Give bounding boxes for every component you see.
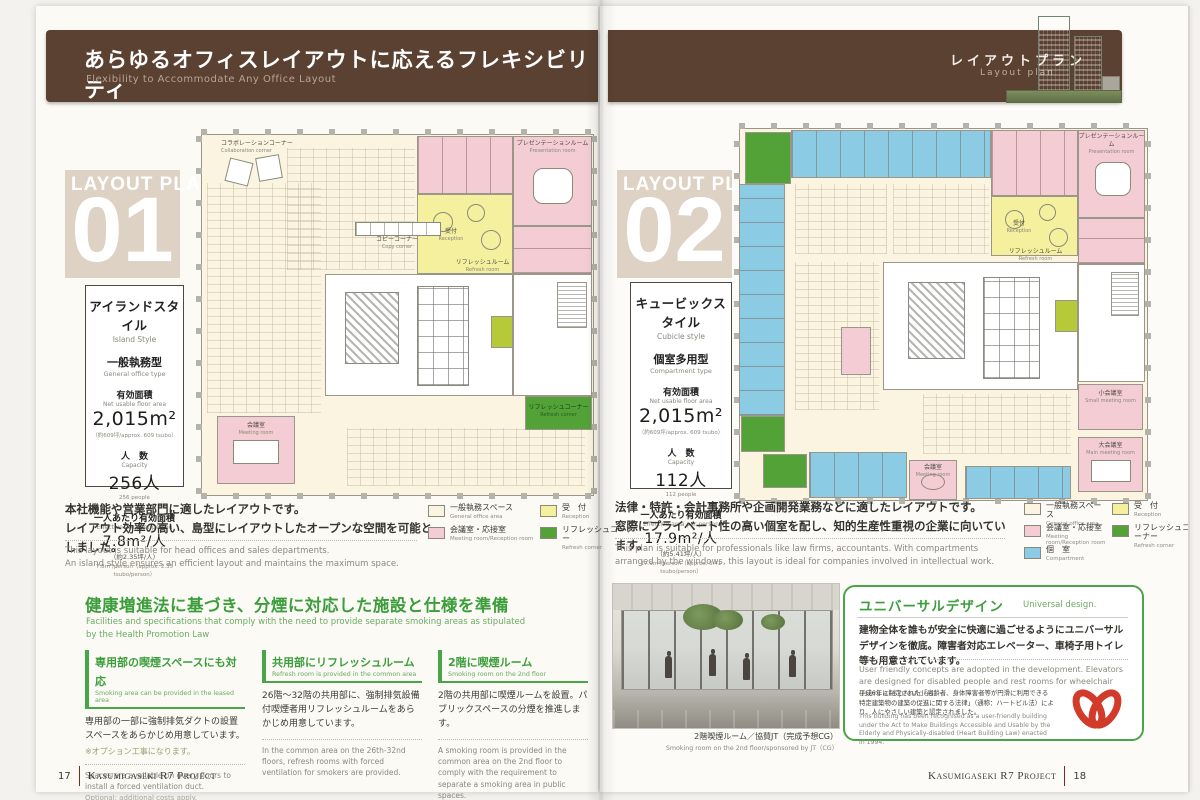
- legend-item-reception: 受 付Reception: [1112, 502, 1196, 524]
- plan1-type-en: General office type: [86, 370, 183, 378]
- header-band-right: レイアウトプラン Layout plan: [608, 30, 1122, 102]
- legend-item-compartment: 個 室Compartment: [1024, 546, 1108, 568]
- plan2-reception-rooms-zone: [991, 130, 1078, 196]
- legend-swatch: [1024, 547, 1041, 559]
- plan2-reception-label: 受付: [1013, 220, 1025, 227]
- plan2-capacity-value: 112人: [631, 466, 731, 491]
- smoking-col1-title-en: Smoking area can be provided in the leas…: [95, 690, 245, 704]
- plan2-presentation-label: プレゼンテーションルーム: [1079, 133, 1145, 148]
- plan1-area-label: 有効面積: [86, 388, 183, 401]
- project-name-right: Kasumigaseki R7 Project: [928, 770, 1056, 782]
- plan2-area-value: 2,015m²: [631, 405, 731, 427]
- smoking-room-photo: [612, 583, 840, 729]
- legend-swatch: [1112, 525, 1129, 537]
- smoking-col1-title: 専用部の喫煙スペースにも対応: [95, 656, 237, 688]
- footer-left: 17 Kasumigaseki R7 Project: [58, 766, 216, 786]
- plan2-main-meeting-label-en: Main meeting room: [1078, 450, 1143, 457]
- plan2-refresh-corner-bl2: [763, 454, 807, 488]
- legend-swatch: [540, 527, 557, 539]
- plan1-refresh-room-zone: [491, 316, 513, 348]
- plan1-info-box: アイランドスタイル Island Style 一般執務型 General off…: [85, 285, 184, 487]
- plan1-collaboration-label: コラボレーションコーナー: [221, 140, 293, 147]
- photo-caption-jp: 2階喫煙ルーム／協賛JT（完成予想CG）: [612, 731, 838, 742]
- layout-plan-02-number: 02: [617, 184, 732, 276]
- plan1-style-jp: アイランドスタイル: [86, 296, 183, 334]
- layout-plan-01-block: LAYOUT PLAN 01: [65, 170, 180, 278]
- smoking-heading-en: Facilities and specifications that compl…: [86, 616, 526, 642]
- plan2-area-label: 有効面積: [631, 385, 731, 398]
- plan2-compartment-bottom: [809, 452, 907, 498]
- footer-right: Kasumigaseki R7 Project 18: [928, 766, 1086, 786]
- brochure-spread: あらゆるオフィスレイアウトに応えるフレキシビリティ Flexibility to…: [0, 0, 1200, 800]
- plan2-desc-jp1: 法律・特許・会計事務所や企画開発業務などに適したレイアウトです。: [615, 498, 1015, 517]
- project-name-left: Kasumigaseki R7 Project: [88, 770, 216, 782]
- plan1-capacity-label-en: Capacity: [86, 462, 183, 469]
- heart-building-mark: [1066, 683, 1128, 735]
- page-number-left: 17: [58, 771, 71, 782]
- legend-item-meeting: 会議室・応接室Meeting room/Reception room: [1024, 524, 1108, 546]
- plan1-legend: 一般執務スペースGeneral office area 受 付Reception…: [428, 504, 636, 548]
- plan2-reception-label-en: Reception: [999, 228, 1039, 235]
- plan1-capacity-label: 人 数: [86, 449, 183, 462]
- photo-caption-en: Smoking room on the 2nd floor/sponsored …: [612, 743, 838, 752]
- plan2-small-meeting-label-en: Small meeting room: [1078, 398, 1143, 405]
- page-subtitle: Flexibility to Accommodate Any Office La…: [86, 74, 336, 85]
- plan1-copy-label: コピーコーナー: [376, 236, 418, 243]
- universal-title-jp: ユニバーサルデザイン: [859, 595, 1004, 615]
- layout-plan-02-block: LAYOUT PLAN 02: [617, 170, 732, 278]
- photo-caption: 2階喫煙ルーム／協賛JT（完成予想CG） Smoking room on the…: [612, 731, 838, 752]
- smoking-col3-title: 2階に喫煙ルーム: [448, 656, 532, 669]
- plan1-type-jp: 一般執務型: [86, 354, 183, 370]
- plan2-type-en: Compartment type: [631, 367, 731, 375]
- smoking-col2-title: 共用部にリフレッシュルーム: [272, 656, 415, 669]
- plan2-refresh-room-zone: [1055, 300, 1078, 332]
- plan1-reception-label: 受付: [445, 228, 457, 235]
- smoking-col3-body: 2階の共用部に喫煙ルームを設置。パブリックスペースの分煙を推進します。: [438, 690, 588, 732]
- plan2-small-meeting-label: 小会議室: [1098, 390, 1122, 397]
- floor-plan-02: プレゼンテーションルームPresentation room 受付Receptio…: [733, 122, 1152, 505]
- floor-plan-01: プレゼンテーションルームPresentation room 受付Receptio…: [195, 128, 598, 500]
- plan1-desc-en1: This layout is suitable for head offices…: [65, 545, 425, 558]
- plan2-info-box: キュービックスタイル Cubicle style 個室多用型 Compartme…: [630, 282, 732, 489]
- smoking-col1-note: ※オプション工事になります。: [85, 746, 245, 757]
- plan1-capacity-value: 256人: [86, 469, 183, 494]
- plan2-compartment-left: [739, 184, 785, 416]
- plan1-refresh-room-label: リフレッシュルーム: [456, 259, 510, 266]
- legend-swatch: [428, 505, 445, 517]
- plan2-refresh-room-label: リフレッシュルーム: [1009, 248, 1063, 255]
- plan2-refresh-corner-bl: [741, 416, 785, 452]
- smoking-col-2: 共用部にリフレッシュルームRefresh room is provided in…: [262, 650, 422, 779]
- header-band-left: あらゆるオフィスレイアウトに応えるフレキシビリティ Flexibility to…: [46, 30, 598, 102]
- plan2-meeting-label: 会議室: [924, 464, 942, 471]
- plan1-desc-en: This layout is suitable for head offices…: [65, 545, 425, 571]
- smoking-col2-title-en: Refresh room is provided in the common a…: [272, 671, 422, 678]
- plan1-meeting-label: 会議室: [247, 422, 265, 429]
- plan1-desc-jp1: 本社機能や営業部門に適したレイアウトです。: [65, 500, 435, 519]
- smoking-col3-title-en: Smoking room on the 2nd floor: [448, 671, 588, 678]
- legend-item-refresh: リフレッシュコーナーRefresh corner: [1112, 524, 1196, 546]
- plan1-copy-label-en: Copy corner: [355, 244, 439, 251]
- plan1-reception-rooms-zone: [417, 136, 513, 194]
- plan2-reception-small-zone: [1078, 218, 1145, 264]
- plan2-desc-en2: arranged by the windows, this layout is …: [615, 556, 1015, 569]
- plan1-area-label-en: Net usable floor area: [86, 401, 183, 408]
- plan2-presentation-label-en: Presentation room: [1078, 149, 1145, 156]
- plan2-style-jp: キュービックスタイル: [631, 293, 731, 331]
- smoking-col-3: 2階に喫煙ルームSmoking room on the 2nd floor 2階…: [438, 650, 588, 800]
- plan1-refresh-room-label-en: Refresh room: [435, 267, 530, 274]
- smoking-heading-jp: 健康増進法に基づき、分煙に対応した施設と仕様を準備: [85, 592, 509, 616]
- plan1-refresh-corner-label: リフレッシュコーナー: [528, 404, 588, 411]
- plan1-presentation-label-en: Presentation room: [513, 148, 592, 155]
- plan2-area-note: （約609坪/approx. 609 tsubo）: [631, 428, 731, 436]
- legend-item-general-office: 一般執務スペースGeneral office area: [1024, 502, 1108, 524]
- plan2-legend: 一般執務スペースGeneral office area 受 付Reception…: [1024, 502, 1196, 568]
- plan1-presentation-label: プレゼンテーションルーム: [517, 140, 589, 147]
- plan2-type-jp: 個室多用型: [631, 351, 731, 367]
- plan1-refresh-corner-label-en: Refresh corner: [525, 412, 592, 419]
- smoking-col1-note-en: Optional: additional costs apply.: [85, 794, 245, 800]
- legend-item-general-office: 一般執務スペースGeneral office area: [428, 504, 536, 526]
- plan2-style-en: Cubicle style: [631, 332, 731, 341]
- smoking-col2-body: 26階～32階の共用部に、強制排気設備付喫煙者用リフレッシュルームをあらかじめ用…: [262, 690, 422, 732]
- universal-title-en: Universal design.: [1023, 600, 1096, 610]
- plan1-style-en: Island Style: [86, 335, 183, 344]
- plan2-refresh-room-label-en: Refresh room: [988, 256, 1083, 263]
- plan1-area-note: （約609坪/approx. 609 tsubo）: [86, 431, 183, 439]
- ground-illustration: [1006, 90, 1122, 103]
- universal-note-en: This building has been recognised as a u…: [859, 713, 1054, 748]
- smoking-col2-body-en: In the common area on the 26th-32nd floo…: [262, 745, 422, 779]
- plan2-area-label-en: Net usable floor area: [631, 398, 731, 405]
- plan2-refresh-corner-tl: [745, 132, 791, 184]
- legend-swatch: [1112, 503, 1129, 515]
- plan1-desc-en2: An island style ensures an efficient lay…: [65, 558, 425, 571]
- universal-design-box: ユニバーサルデザイン Universal design. 建物全体を誰もが安全に…: [843, 585, 1144, 741]
- plan2-desc-en: This plan is suitable for professionals …: [615, 543, 1015, 569]
- universal-body-jp: 建物全体を誰もが安全に快適に過ごせるようにユニバーサルデザインを徹底。障害者対応…: [859, 623, 1128, 670]
- plan2-server-room-zone: [841, 327, 871, 375]
- plan2-meeting-label-en: Meeting room: [909, 472, 957, 479]
- smoking-col3-body-en: A smoking room is provided in the common…: [438, 745, 588, 800]
- plan1-area-value: 2,015m²: [86, 408, 183, 430]
- legend-swatch: [1024, 503, 1041, 515]
- layout-plan-01-number: 01: [65, 184, 180, 276]
- plan2-capacity-label-en: Capacity: [631, 459, 731, 466]
- page-number-right: 18: [1073, 771, 1086, 782]
- legend-swatch: [1024, 525, 1041, 537]
- plan2-capacity-label: 人 数: [631, 446, 731, 459]
- plan2-compartment-bottom2: [965, 466, 1071, 499]
- plan2-compartment-top: [791, 130, 991, 178]
- legend-item-meeting: 会議室・応接室Meeting room/Reception room: [428, 526, 536, 548]
- plan2-main-meeting-label: 大会議室: [1098, 442, 1122, 449]
- smoking-col1-body: 専用部の一部に強制排気ダクトの設置スペースをあらかじめ用意しています。: [85, 716, 245, 744]
- legend-swatch: [540, 505, 557, 517]
- plan1-meeting-label-en: Meeting room: [217, 430, 295, 437]
- legend-swatch: [428, 527, 445, 539]
- plan2-desc-en1: This plan is suitable for professionals …: [615, 543, 1015, 556]
